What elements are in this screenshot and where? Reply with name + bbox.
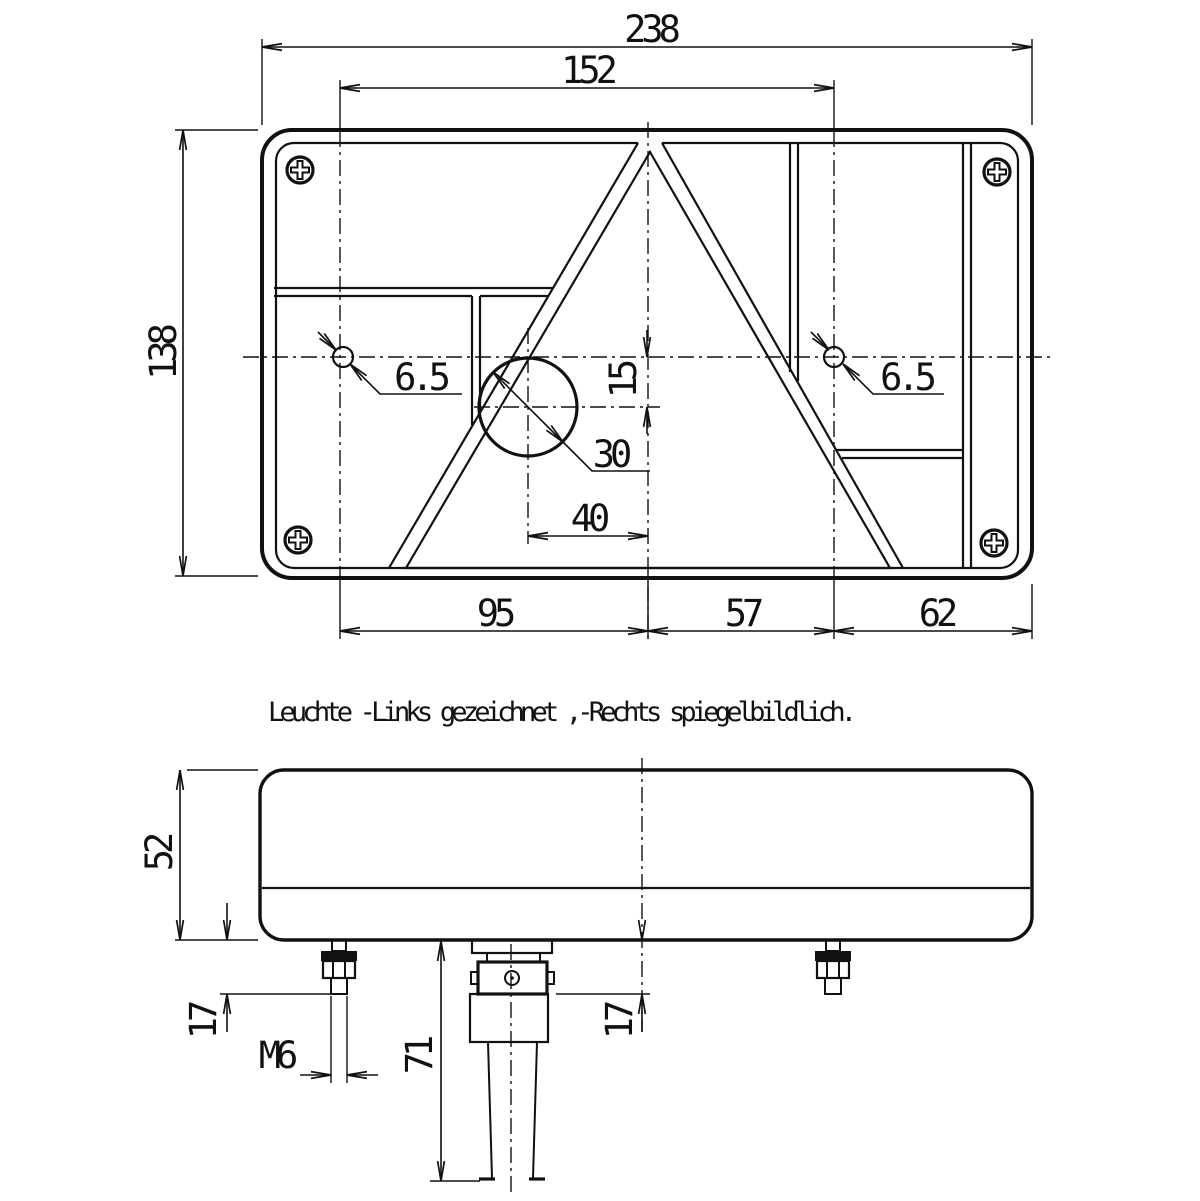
hex-nut xyxy=(323,961,355,978)
dim-depth: 52 xyxy=(138,834,181,871)
phillips-screw-top-left xyxy=(287,157,313,183)
threaded-shank xyxy=(825,978,841,994)
dim-width-total: 238 xyxy=(624,8,679,51)
mounting-stud-left xyxy=(321,940,357,994)
washer xyxy=(321,951,357,961)
threaded-shank xyxy=(331,978,347,994)
side-view: 52 17 M6 71 17 xyxy=(138,758,1032,1196)
dim-mid-span: 57 xyxy=(725,592,762,635)
dim-bulb-hole-x: 40 xyxy=(571,497,608,540)
connector-flange xyxy=(472,940,552,953)
strain-relief xyxy=(470,994,548,1042)
cable-left-edge xyxy=(488,1042,492,1178)
phillips-screw-top-right xyxy=(984,159,1010,185)
dim-center-offset: 15 xyxy=(602,361,645,398)
compartment-dividers xyxy=(274,143,971,568)
technical-drawing-page: 238 152 138 95 xyxy=(0,0,1200,1201)
tail-lamp-dimension-drawing: 238 152 138 95 xyxy=(0,0,1200,1201)
dim-hole-right: 6.5 xyxy=(880,356,935,399)
housing-profile xyxy=(260,770,1032,940)
thread-label: M6 xyxy=(259,1034,296,1077)
dim-connector-protrusion: 17 xyxy=(598,1002,641,1039)
dim-cable-length: 71 xyxy=(398,1037,441,1074)
cable-connector xyxy=(470,940,554,1179)
cable-right-edge xyxy=(533,1042,537,1178)
dim-height: 138 xyxy=(142,325,185,380)
drawing-note: Leuchte -Links gezeichnet ,-Rechts spieg… xyxy=(268,697,852,728)
triangle-right-outer-edge xyxy=(662,143,903,568)
mounting-stud-right xyxy=(815,940,851,994)
phillips-screw-bottom-left xyxy=(285,527,311,553)
dim-stud-protrusion: 17 xyxy=(182,1002,225,1039)
dim-right-span: 62 xyxy=(919,592,956,635)
dim-hole-left: 6.5 xyxy=(394,356,449,399)
washer xyxy=(815,951,851,961)
dim-left-span: 95 xyxy=(477,592,514,635)
phillips-screw-bottom-right xyxy=(981,530,1007,556)
dim-bulb-hole-dia: 30 xyxy=(593,433,630,476)
front-view: 238 152 138 95 xyxy=(142,8,1053,639)
side-dimensions: 52 17 M6 71 17 xyxy=(138,770,650,1181)
dim-hole-spacing: 152 xyxy=(561,49,616,92)
hex-nut xyxy=(817,961,849,978)
